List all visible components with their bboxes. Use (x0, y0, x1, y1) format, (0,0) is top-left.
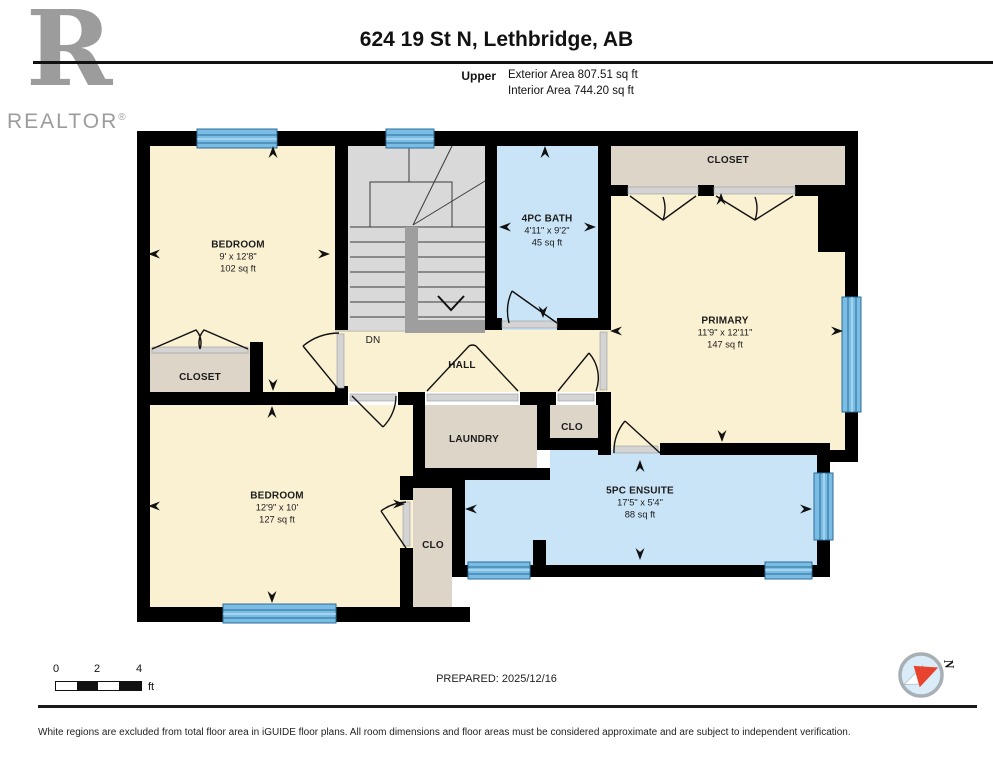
room-label-laundry: LAUNDRY (449, 434, 499, 446)
room-name: DN (366, 335, 381, 347)
room-area: 88 sq ft (606, 509, 674, 521)
stair-center-rail (405, 227, 418, 333)
room-label-primary: PRIMARY 11'9" x 12'11" 147 sq ft (698, 316, 753, 351)
room-area: 147 sq ft (698, 339, 753, 351)
floorplan-page: { "header": { "title": "624 19 St N, Let… (0, 0, 993, 768)
room-name: LAUNDRY (449, 434, 499, 446)
room-name: CLO (422, 540, 444, 552)
room-label-bedroom2: BEDROOM 12'9" x 10' 127 sq ft (250, 491, 304, 526)
room-name: 4PC BATH (522, 214, 573, 226)
window-ensuite-bottom-right (765, 562, 812, 579)
room-name: 5PC ENSUITE (606, 486, 674, 498)
room-name: HALL (448, 360, 475, 372)
room-label-clo-bed: CLO (422, 540, 444, 552)
room-name: CLOSET (707, 155, 749, 167)
room-label-closet1: CLOSET (179, 372, 221, 384)
room-dims: 4'11" x 9'2" (522, 226, 573, 238)
room-name: CLO (561, 422, 583, 434)
room-closet1-floor (150, 348, 250, 392)
window-bedroom2-bottom (223, 604, 336, 623)
floorplan-svg (0, 0, 993, 768)
prepared-date: PREPARED: 2025/12/16 (0, 673, 993, 685)
window-ensuite-bottom-left (468, 562, 530, 579)
room-name: BEDROOM (250, 491, 304, 503)
room-name: PRIMARY (698, 316, 753, 328)
room-area: 127 sq ft (250, 514, 304, 526)
room-label-bath: 4PC BATH 4'11" x 9'2" 45 sq ft (522, 214, 573, 249)
room-label-bedroom1: BEDROOM 9' x 12'8" 102 sq ft (211, 240, 265, 275)
footer-divider (38, 705, 977, 708)
stair-landing-edge (405, 320, 485, 333)
room-dims: 11'9" x 12'11" (698, 328, 753, 340)
room-dims: 12'9" x 10' (250, 503, 304, 515)
window-bedroom1-top (197, 129, 277, 148)
room-label-hall: HALL (448, 360, 475, 372)
room-ensuite-floor-main (550, 450, 817, 565)
room-area: 102 sq ft (211, 263, 265, 275)
room-dims: 17'5" x 5'4" (606, 498, 674, 510)
room-label-closet-primary: CLOSET (707, 155, 749, 167)
room-label-stairs-dn: DN (366, 335, 381, 347)
disclaimer-text: White regions are excluded from total fl… (38, 727, 968, 738)
room-area: 45 sq ft (522, 237, 573, 249)
room-label-ensuite: 5PC ENSUITE 17'5" x 5'4" 88 sq ft (606, 486, 674, 521)
room-name: BEDROOM (211, 240, 265, 252)
room-label-clo-mid: CLO (561, 422, 583, 434)
window-stairs-top (386, 129, 434, 148)
room-dims: 9' x 12'8" (211, 252, 265, 264)
room-name: CLOSET (179, 372, 221, 384)
window-ensuite-right (814, 473, 833, 540)
window-primary-right (842, 297, 861, 412)
